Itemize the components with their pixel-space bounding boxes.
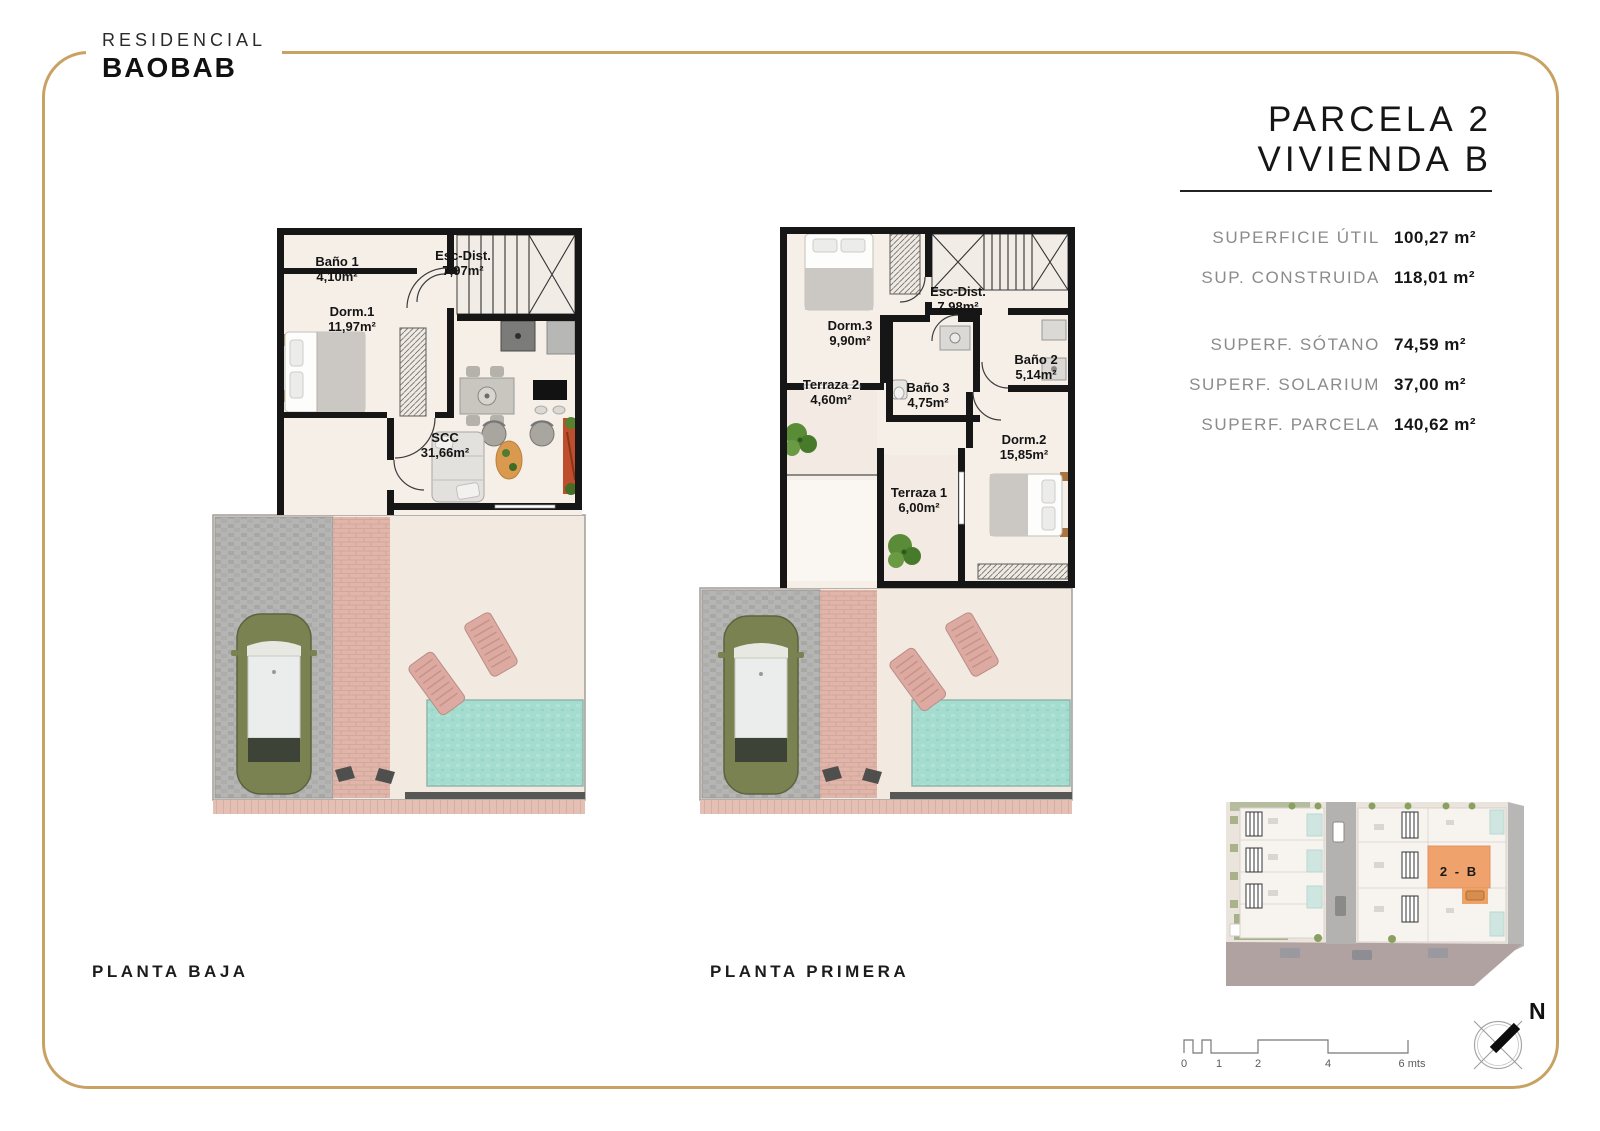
room-area: 4,10m²: [315, 269, 358, 284]
brand-logo: RESIDENCIAL BAOBAB: [86, 26, 282, 90]
surface-row-solarium: SUPERF. SOLARIUM 37,00 m²: [1092, 371, 1492, 398]
room-label-scc: SCC 31,66m²: [421, 430, 469, 460]
room-label-terraza2: Terraza 2 4,60m²: [803, 377, 859, 407]
surface-table: SUPERFICIE ÚTIL 100,27 m² SUP. CONSTRUID…: [1092, 224, 1492, 451]
scale-tick-1: 1: [1216, 1058, 1222, 1070]
room-area: 5,14m²: [1014, 367, 1057, 382]
siteplan-unit-label: 2 - B: [1440, 864, 1478, 879]
room-area: 15,85m²: [1000, 447, 1048, 462]
room-name: Terraza 1: [891, 485, 947, 500]
room-name: Baño 3: [906, 380, 949, 395]
floorplan-baja-drawing: [195, 222, 595, 822]
surface-value: 118,01 m²: [1380, 264, 1492, 291]
room-label-escdist: Esc-Dist. 7,98m²: [930, 284, 986, 314]
room-name: Esc-Dist.: [930, 284, 986, 299]
room-name: Baño 2: [1014, 352, 1057, 367]
car-icon: [718, 616, 804, 794]
room-label-bano2: Baño 2 5,14m²: [1014, 352, 1057, 382]
room-name: Baño 1: [315, 254, 358, 269]
room-label-dorm3: Dorm.3 9,90m²: [828, 318, 873, 348]
compass-drawing: [1455, 998, 1565, 1098]
compass-north-label: N: [1529, 998, 1546, 1025]
surface-group-gap: [1092, 304, 1492, 331]
surface-value: 74,59 m²: [1380, 331, 1492, 358]
surface-label: SUPERF. SÓTANO: [1211, 331, 1380, 358]
floorplan-primera: Dorm.3 9,90m² Esc-Dist. 7,98m² Baño 2 5,…: [690, 222, 1090, 822]
room-label-escdist: Esc-Dist. 7,97m²: [435, 248, 491, 278]
surface-value: 37,00 m²: [1380, 371, 1492, 398]
surface-label: SUP. CONSTRUIDA: [1201, 264, 1380, 291]
floorplan-baja: Baño 1 4,10m² Esc-Dist. 7,97m² Dorm.1 11…: [195, 222, 595, 822]
brand-name-bottom: BAOBAB: [102, 52, 266, 84]
room-area: 11,97m²: [328, 319, 376, 334]
title-underline: [1180, 190, 1492, 192]
room-label-dorm2: Dorm.2 15,85m²: [1000, 432, 1048, 462]
room-area: 7,97m²: [435, 263, 491, 278]
room-name: Terraza 2: [803, 377, 859, 392]
scale-tick-6: 6 mts: [1399, 1058, 1426, 1070]
room-area: 4,60m²: [803, 392, 859, 407]
page-title: PARCELA 2 VIVIENDA B: [1180, 100, 1492, 192]
surface-label: SUPERF. PARCELA: [1201, 411, 1380, 438]
car-icon: [231, 614, 317, 794]
room-name: Dorm.3: [828, 318, 873, 333]
surface-label: SUPERFICIE ÚTIL: [1212, 224, 1380, 251]
room-name: Dorm.2: [1000, 432, 1048, 447]
surface-row-parcela: SUPERF. PARCELA 140,62 m²: [1092, 411, 1492, 438]
room-area: 6,00m²: [891, 500, 947, 515]
room-name: Dorm.1: [328, 304, 376, 319]
surface-row-construida: SUP. CONSTRUIDA 118,01 m²: [1092, 264, 1492, 291]
surface-value: 100,27 m²: [1380, 224, 1492, 251]
brand-name-top: RESIDENCIAL: [102, 30, 266, 51]
scale-bar-drawing: [1150, 1014, 1440, 1078]
room-label-dorm1: Dorm.1 11,97m²: [328, 304, 376, 334]
scale-tick-0: 0: [1181, 1058, 1187, 1070]
brochure-page: RESIDENCIAL BAOBAB PARCELA 2 VIVIENDA B …: [0, 0, 1600, 1131]
title-vivienda: VIVIENDA B: [1180, 140, 1492, 180]
siteplan-drawing: [1222, 796, 1528, 988]
scale-tick-2: 2: [1255, 1058, 1261, 1070]
title-parcela: PARCELA 2: [1180, 100, 1492, 140]
caption-planta-primera: PLANTA PRIMERA: [710, 962, 909, 982]
surface-value: 140,62 m²: [1380, 411, 1492, 438]
room-label-terraza1: Terraza 1 6,00m²: [891, 485, 947, 515]
room-area: 31,66m²: [421, 445, 469, 460]
floorplan-primera-drawing: [690, 222, 1090, 822]
scale-bar: 0 1 2 4 6 mts: [1150, 1014, 1440, 1078]
surface-row-sotano: SUPERF. SÓTANO 74,59 m²: [1092, 331, 1492, 358]
surface-row-util: SUPERFICIE ÚTIL 100,27 m²: [1092, 224, 1492, 251]
room-area: 4,75m²: [906, 395, 949, 410]
caption-planta-baja: PLANTA BAJA: [92, 962, 249, 982]
north-compass: N: [1455, 998, 1565, 1098]
room-name: SCC: [421, 430, 469, 445]
room-area: 9,90m²: [828, 333, 873, 348]
room-label-bano1: Baño 1 4,10m²: [315, 254, 358, 284]
scale-tick-4: 4: [1325, 1058, 1331, 1070]
room-name: Esc-Dist.: [435, 248, 491, 263]
surface-label: SUPERF. SOLARIUM: [1189, 371, 1380, 398]
siteplan-minimap: 2 - B: [1222, 796, 1528, 988]
room-area: 7,98m²: [930, 299, 986, 314]
room-label-bano3: Baño 3 4,75m²: [906, 380, 949, 410]
